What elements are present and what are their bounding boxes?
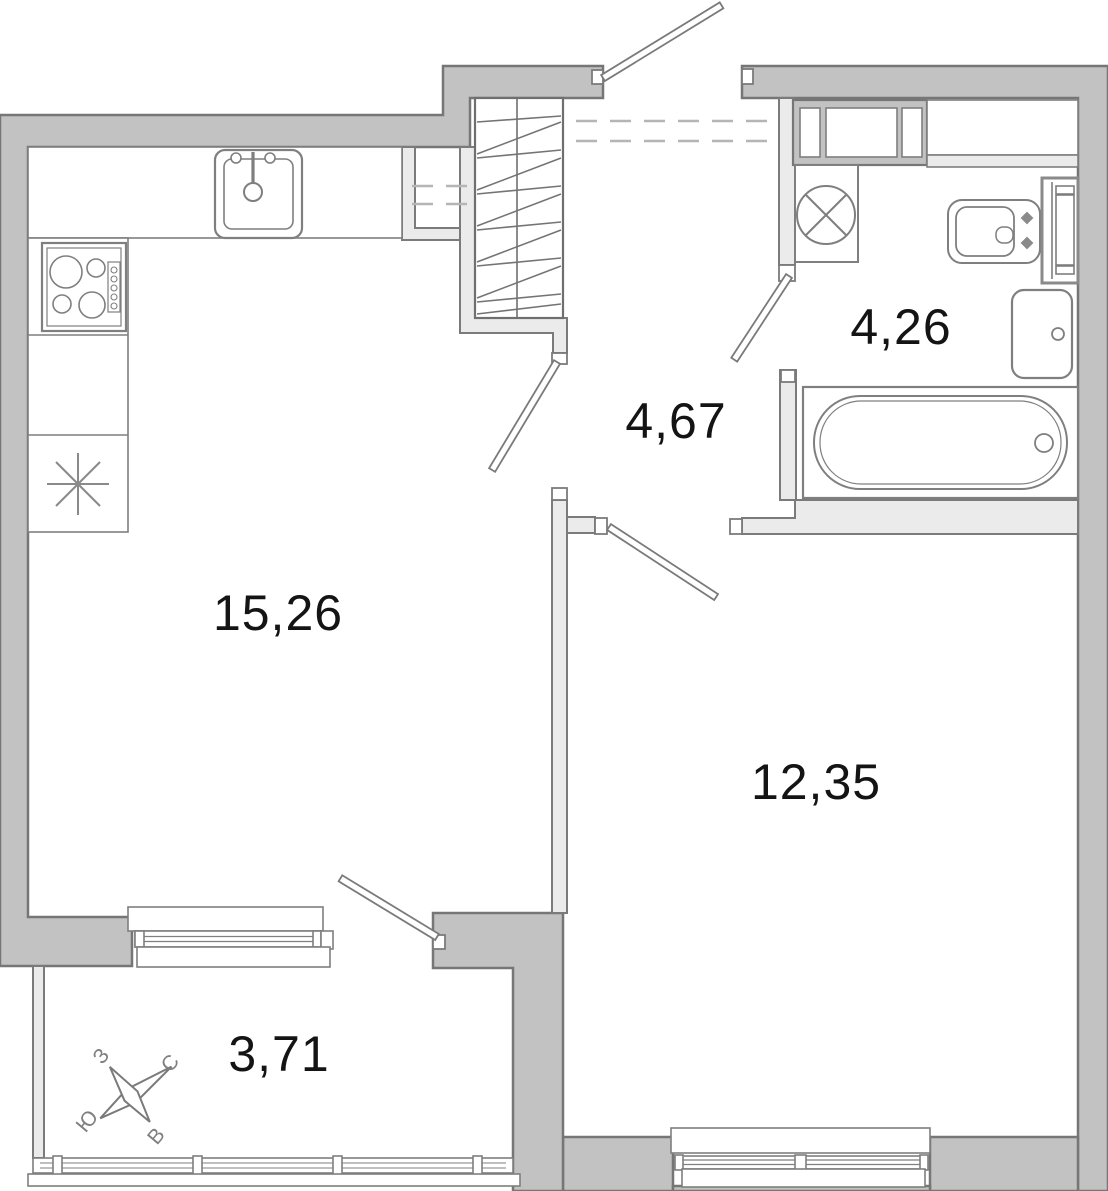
bedroom-door-leaf (607, 524, 718, 600)
living-room-door-leaf (489, 360, 560, 472)
vent-shaft-icon (793, 100, 927, 165)
kitchen-fixtures (28, 147, 402, 532)
bedroom-partition (552, 500, 567, 913)
bottom-wall-left-chunk (563, 1137, 673, 1191)
toilet-icon (948, 200, 1040, 263)
area-label-bathroom: 4,26 (850, 298, 951, 356)
balcony-window (128, 907, 333, 967)
living-door-frame-bottom (552, 488, 567, 500)
area-label-bedroom: 12,35 (751, 753, 881, 811)
compass-west-label: З (88, 1044, 114, 1069)
bathroom-bottom-wall (742, 500, 1078, 534)
area-label-balcony: 3,71 (228, 1025, 329, 1083)
kitchen-sink-icon (215, 150, 302, 238)
bathroom-partition-lower (780, 370, 796, 500)
bathroom-shelf (927, 100, 1078, 167)
bottom-wall-right-chunk (930, 1137, 1078, 1191)
compass-east-label: В (143, 1124, 170, 1150)
floor-plan-drawing: С З Ю В (0, 0, 1108, 1191)
entrance-frame-right (742, 69, 753, 84)
bathroom-sink-icon (1012, 290, 1072, 378)
area-label-kitchen-living-room: 15,26 (213, 584, 343, 642)
balcony-parapet (33, 966, 44, 1158)
bedroom-door-wall-stub (567, 517, 595, 533)
towel-radiator-icon (1042, 178, 1078, 283)
built-in-wardrobe (475, 98, 563, 318)
balcony-glazing (28, 1156, 520, 1186)
bathroom-door-frame-bottom (781, 370, 795, 382)
area-label-hallway: 4,67 (625, 392, 726, 450)
bathtub-icon (803, 387, 1078, 498)
bedroom-door-frame-left (595, 518, 607, 534)
bedroom-door-frame-right (730, 519, 742, 534)
floor-plan: С З Ю В 15,26 4,67 4,26 12,35 3,71 (0, 0, 1108, 1191)
entrance-door-leaf (601, 2, 723, 81)
bathroom-door-leaf (731, 274, 792, 362)
fridge-snowflake-icon (47, 453, 109, 515)
stove-icon (42, 243, 126, 331)
bedroom-window (671, 1128, 930, 1187)
balcony-door-leaf (339, 875, 439, 940)
balcony-side-wall (433, 913, 563, 1191)
washing-machine-icon (795, 165, 858, 262)
compass-south-label: Ю (72, 1106, 103, 1137)
